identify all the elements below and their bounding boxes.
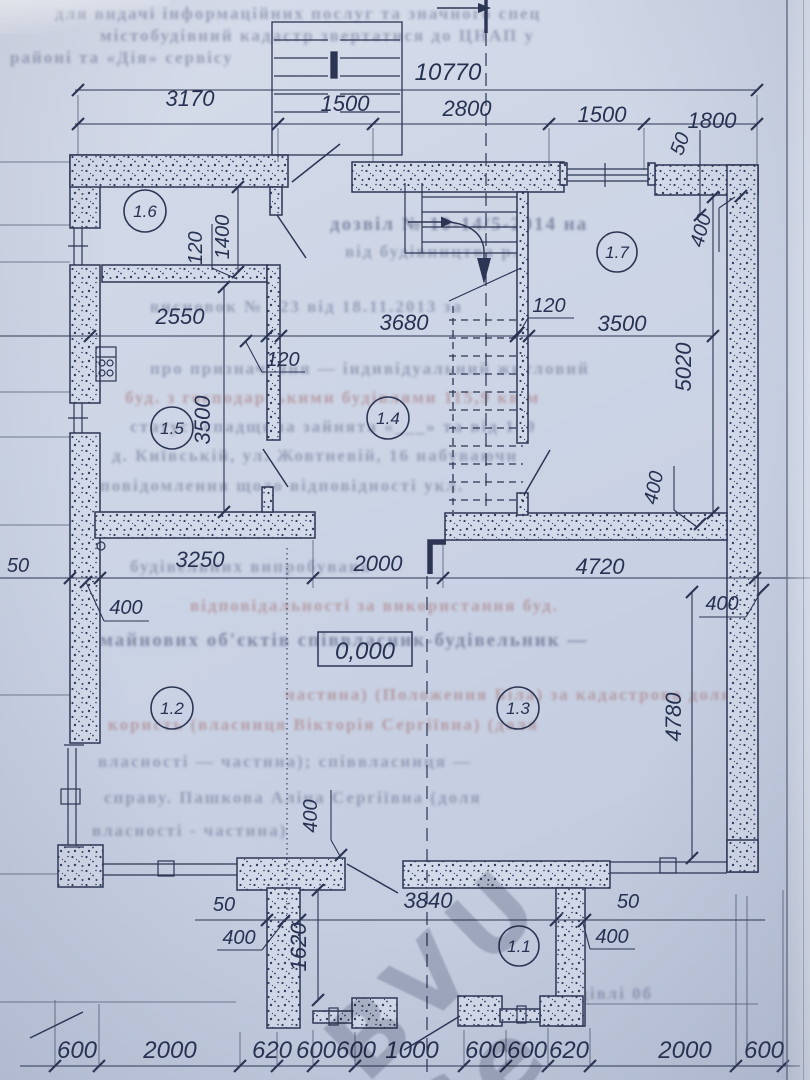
dim-50-bottom-left: 50 [213, 894, 235, 916]
dim-bottom-10: 600 [744, 1037, 785, 1064]
dim-1500-top-left: 1500 [321, 91, 371, 116]
door-leaf-porch-inner [347, 864, 398, 893]
dim-bottom-1: 2000 [142, 1037, 197, 1064]
window-bottom-right [610, 862, 727, 873]
dim-400-mid-right: 400 [640, 469, 668, 506]
dim-120-partition: 120 [266, 349, 299, 371]
wall-middle-right [445, 513, 727, 540]
paper-edge-line [803, 0, 804, 1080]
dim-bottom-3: 600 [296, 1037, 337, 1064]
window-post-left [560, 163, 567, 185]
wall-corner-bottom-right [727, 840, 758, 872]
window-bottom-left [103, 864, 237, 875]
dim-1800: 1800 [688, 108, 738, 133]
porch-pier-3 [540, 996, 583, 1026]
dim-4720: 4720 [576, 554, 626, 579]
dim-400-right: 400 [705, 593, 738, 615]
dim-400-porch: 400 [300, 799, 322, 832]
door-leaf-room15 [263, 449, 288, 487]
dim-3500-room15: 3500 [190, 395, 215, 445]
dim-3500-room17: 3500 [598, 311, 648, 336]
stair-arrow-down-icon [477, 258, 491, 284]
room-number-17: 1.7 [605, 243, 629, 262]
wall-right [727, 165, 758, 872]
chimney-mark [430, 542, 446, 574]
dim-3170: 3170 [166, 86, 216, 111]
door-leaf-gate [30, 1012, 83, 1038]
dim-50-top-right: 50 [666, 130, 694, 158]
wall-corner-bottom-left [58, 845, 103, 887]
room-number-16: 1.6 [133, 202, 157, 221]
wall-top-middle [352, 162, 564, 192]
dim-3250: 3250 [176, 547, 226, 572]
room-number-14: 1.4 [376, 409, 400, 428]
window-left-3 [64, 745, 84, 847]
scanned-floor-plan-page: для видачі інформаційних послуг та значн… [0, 0, 810, 1080]
dim-400-top-right: 400 [686, 211, 716, 249]
window-left-1 [68, 228, 88, 265]
wall-stair-partition [517, 192, 528, 443]
staircase [405, 183, 523, 512]
window-bottom-left-mullion [158, 861, 174, 876]
dim-50-left: 50 [7, 555, 29, 577]
dim-bottom-5: 1000 [385, 1037, 439, 1064]
room-number-15: 1.5 [160, 419, 184, 438]
exterior-stair-mark [331, 52, 337, 78]
dim-120-room16: 120 [185, 231, 207, 264]
exterior-stair-outline [272, 22, 402, 155]
dim-400-bottom-right: 400 [595, 926, 628, 948]
wall-middle-left [95, 512, 315, 538]
dim-4780: 4780 [661, 692, 686, 742]
room-number-13: 1.3 [506, 699, 530, 718]
dim-1620: 1620 [286, 922, 311, 972]
paper-edge-fold [786, 0, 810, 1080]
window-top [567, 163, 648, 187]
porch-pier-2 [458, 996, 502, 1026]
window-left-3-mullion [61, 789, 80, 804]
wall-bottom-right [403, 861, 610, 888]
dim-3680: 3680 [380, 310, 430, 335]
dim-2000: 2000 [353, 551, 404, 576]
door-jamb-room15 [262, 487, 273, 512]
dim-2800: 2800 [442, 96, 493, 121]
porch-pier-1 [352, 998, 397, 1028]
exterior-stair [272, 22, 402, 155]
window-left-2 [68, 403, 88, 433]
dim-400-left: 400 [109, 597, 142, 619]
door-leaf-room13 [524, 450, 550, 495]
dim-2550: 2550 [155, 304, 206, 329]
dim-400-bottom-left: 400 [222, 927, 255, 949]
door-jamb-room16 [270, 187, 282, 215]
door-leaf-top-entrance [292, 144, 340, 182]
dim-bottom-0: 600 [57, 1037, 98, 1064]
room-number-11: 1.1 [507, 937, 531, 956]
dim-1500-top-right: 1500 [578, 102, 628, 127]
dim-5020: 5020 [671, 342, 696, 392]
dim-3840: 3840 [404, 888, 454, 913]
dim-1400: 1400 [212, 215, 234, 260]
porch-railing-right [500, 1009, 540, 1022]
level-mark: 0,000 [335, 638, 396, 665]
dim-bottom-7: 600 [507, 1037, 548, 1064]
wall-left-3 [70, 433, 100, 743]
window-bottom-right-mullion [660, 858, 676, 873]
dim-50-bottom-right: 50 [617, 891, 639, 913]
door-leaf-room16 [277, 215, 306, 258]
wall-left-2 [70, 265, 100, 403]
dim-bottom-6: 600 [465, 1037, 506, 1064]
door-jamb-room13 [517, 493, 528, 515]
dim-bottom-8: 620 [549, 1037, 590, 1064]
floor-plan-drawing: 1.6 1.7 1.5 1.4 1.2 1.3 1.1 10770 3170 1… [0, 0, 810, 1080]
dim-120-stair: 120 [532, 295, 565, 317]
dim-10770: 10770 [415, 59, 482, 86]
dim-bottom-2: 620 [252, 1037, 293, 1064]
window-post-right [648, 163, 655, 185]
room-number-12: 1.2 [160, 699, 184, 718]
wall-top-left [70, 155, 288, 187]
bottom-dimension-labels: 600 2000 620 600 600 1000 600 600 620 20… [57, 1037, 785, 1064]
dim-bottom-9: 2000 [657, 1037, 712, 1064]
porch-railing-left [313, 1011, 352, 1023]
wall-bottom-left-pier [237, 858, 345, 890]
dim-bottom-4: 600 [336, 1037, 377, 1064]
